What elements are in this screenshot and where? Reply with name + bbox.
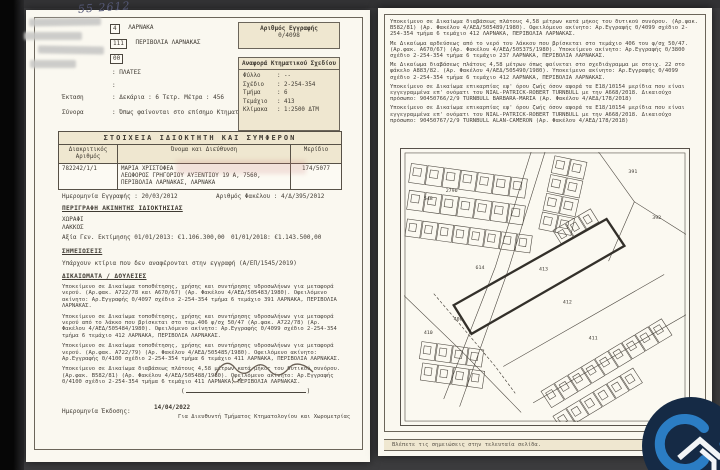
sheet-row: 00 bbox=[110, 54, 128, 64]
rights-paragraphs: Υποκείμενο σε Δικαίωμα διαβάσεως πλάτους… bbox=[390, 19, 700, 145]
plan-reference-row: Φύλλο: -- bbox=[239, 72, 339, 81]
district-code-box: 4 bbox=[110, 24, 120, 34]
notes-text: Υπάρχουν κτίρια που δεν αναφέρονται στην… bbox=[62, 260, 297, 268]
rights-heading: ΔΙΚΑΙΩΜΑΤΑ / ΔΟΥΛΕΙΕΣ bbox=[62, 273, 147, 280]
owner-table-title: ΣΤΟΙΧΕΙΑ ΙΔΙΟΚΤΗΤΗ ΚΑΙ ΣΥΜΦΕΡΟΝ bbox=[59, 132, 341, 145]
locality-value: : ΠΛΑΤΕΣ bbox=[112, 69, 141, 77]
document-page-right: Υποκείμενο σε Δικαίωμα διαβάσεως πλάτους… bbox=[378, 8, 712, 456]
borders-label: Σύνορα bbox=[62, 109, 84, 117]
svg-text:410: 410 bbox=[424, 330, 433, 336]
rights-paragraph: Υποκείμενο σε Δικαίωμα διαβάσεως πλάτους… bbox=[390, 19, 700, 38]
extent-value: : Δεκάρια : 6 Τετρ. Μέτρα : 456 bbox=[112, 94, 224, 102]
description-heading: ΠΕΡΙΓΡΑΦΗ ΑΚΙΝΗΤΗΣ ΙΔΙΟΚΤΗΣΙΑΣ bbox=[62, 205, 183, 212]
valuation-2013: Αξία Γεν. Εκτίμησης 01/01/2013: €1.106.3… bbox=[62, 234, 225, 242]
description-items: ΧΩΡΑΦΙΛΑΚΚΟΣ bbox=[62, 216, 84, 232]
district-name: ΛΑΡΝΑΚΑ bbox=[128, 24, 153, 31]
stamp-smudge bbox=[176, 160, 306, 174]
cadastral-map: 5482796614413391392412411410408 bbox=[404, 152, 686, 422]
plan-reference-box: Αναφορά Κτηματικού Σχεδίου Φύλλο: --Σχέδ… bbox=[238, 57, 340, 131]
village-name: ΠΕΡΙΒΟΛΙΑ ΛΑΡΝΑΚΑΣ bbox=[135, 39, 200, 46]
extent-label: Έκταση bbox=[62, 94, 84, 102]
registration-date: Ημερομηνία Εγγραφής : 20/03/2012 bbox=[62, 193, 178, 201]
svg-text:2796: 2796 bbox=[446, 188, 458, 194]
blank-field: : bbox=[112, 82, 116, 90]
rights-paragraph: Με Δικαίωμα διαβάσεως πλάτους 4,58 μέτρω… bbox=[390, 62, 700, 81]
village-row: 111 ΠΕΡΙΒΟΛΙΑ ΛΑΡΝΑΚΑΣ bbox=[110, 39, 201, 49]
scan-left-edge bbox=[0, 0, 24, 470]
village-code-box: 111 bbox=[110, 39, 127, 49]
svg-text:411: 411 bbox=[589, 336, 598, 342]
svg-text:548: 548 bbox=[424, 196, 433, 202]
owner-address: ΛΕΩΦΟΡΟΣ ΓΡΗΓΟΡΙΟΥ ΑΥΞΕΝΤΙΟΥ 19 Α, 7560,… bbox=[121, 173, 287, 187]
plan-reference-title: Αναφορά Κτηματικού Σχεδίου bbox=[239, 58, 339, 70]
rights-paragraph: Με Δικαίωμα αρδεύσεως από το νερό του λά… bbox=[390, 41, 700, 60]
signature-line: () bbox=[181, 388, 310, 395]
document-page-left: 55 2612 4 ΛΑΡΝΑΚΑ 111 ΠΕΡΙΒΟΛΙΑ ΛΑΡΝΑΚΑΣ… bbox=[26, 10, 370, 462]
svg-text:392: 392 bbox=[652, 215, 661, 221]
signature-scribble bbox=[211, 356, 321, 386]
file-number: Αριθμός Φακέλου : 4/Δ/395/2012 bbox=[216, 193, 324, 201]
cadastral-map-frame: 5482796614413391392412411410408 bbox=[400, 148, 690, 426]
rights-paragraph: Υποκείμενο σε Δικαίωμα επικαρπίας εφ' όρ… bbox=[390, 84, 700, 103]
property-description-item: ΧΩΡΑΦΙ bbox=[62, 216, 84, 224]
registration-number-title: Αριθμός Εγγραφής bbox=[239, 23, 339, 32]
plan-reference-row: Τμήμα: 6 bbox=[239, 89, 339, 98]
rights-paragraph: Υποκείμενο σε Δικαίωμα τοποθέτησης, χρήσ… bbox=[62, 314, 344, 340]
issue-date-label: Ημερομηνία Έκδοσης: bbox=[62, 408, 131, 416]
rights-paragraph: Υποκείμενο σε Δικαίωμα τοποθέτησης, χρήσ… bbox=[62, 284, 344, 310]
issue-date: 14/04/2022 bbox=[154, 404, 190, 412]
owner-id: 782242/1/1 bbox=[59, 164, 118, 189]
svg-text:412: 412 bbox=[563, 299, 572, 305]
plan-reference-row: Σχέδιο: 2-254-354 bbox=[239, 81, 339, 90]
svg-text:408: 408 bbox=[454, 317, 463, 323]
redaction-smudge bbox=[29, 17, 101, 26]
svg-text:391: 391 bbox=[628, 169, 637, 175]
plan-reference-row: Κλίμακα: 1:2500 ΔΤΜ bbox=[239, 106, 339, 115]
svg-text:413: 413 bbox=[539, 267, 548, 273]
sheet-code-box: 00 bbox=[110, 54, 123, 64]
redaction-smudge bbox=[24, 32, 82, 40]
signature-caption: Για Διευθυντή Τμήματος Κτηματολογίου και… bbox=[178, 414, 350, 421]
registration-number-box: Αριθμός Εγγραφής 0/4098 bbox=[238, 22, 340, 49]
registration-number-value: 0/4098 bbox=[239, 32, 339, 39]
screenshot-canvas: 55 2612 4 ΛΑΡΝΑΚΑ 111 ΠΕΡΙΒΟΛΙΑ ΛΑΡΝΑΚΑΣ… bbox=[0, 0, 720, 470]
redaction-smudge bbox=[30, 60, 76, 68]
redaction-smudge bbox=[38, 45, 104, 54]
watermark-logo bbox=[641, 396, 720, 470]
notes-heading: ΣΗΜΕΙΩΣΕΙΣ bbox=[62, 248, 102, 255]
handwritten-note: 55 2612 bbox=[78, 0, 131, 16]
col-id-header: Διακριτικός Αριθμός bbox=[59, 145, 118, 163]
property-description-item: ΛΑΚΚΟΣ bbox=[62, 224, 84, 232]
rights-paragraph: Υποκείμενο σε Δικαίωμα επικαρπίας εφ' όρ… bbox=[390, 105, 700, 124]
district-row: 4 ΛΑΡΝΑΚΑ bbox=[110, 24, 154, 34]
valuation-2018: 01/01/2018: €1.143.500,00 bbox=[231, 234, 321, 242]
plan-reference-row: Τεμάχιο: 413 bbox=[239, 98, 339, 107]
plan-reference-rows: Φύλλο: --Σχέδιο: 2-254-354Τμήμα: 6Τεμάχι… bbox=[239, 72, 339, 115]
svg-text:614: 614 bbox=[475, 265, 484, 271]
